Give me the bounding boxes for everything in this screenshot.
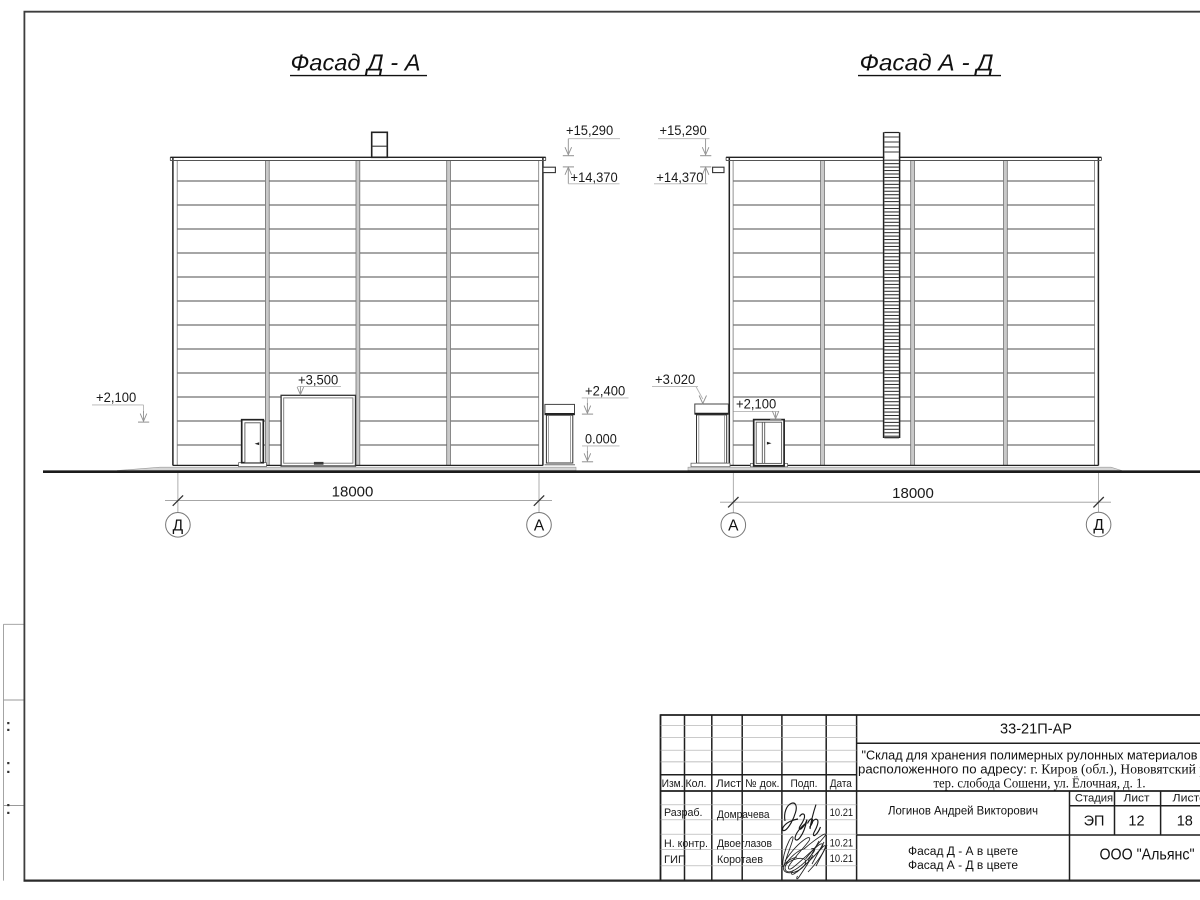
svg-text:Изм.: Изм. [662,778,684,790]
svg-text:+15,290: +15,290 [660,123,707,138]
svg-text:Лист: Лист [1124,793,1150,805]
svg-text:18000: 18000 [332,483,374,500]
svg-text:Д: Д [1093,517,1104,534]
svg-text:+14,370: +14,370 [656,170,703,185]
svg-text:+14,370: +14,370 [571,170,618,185]
svg-text:+3.020: +3.020 [655,372,695,387]
svg-text:ООО "Альянс": ООО "Альянс" [1100,847,1195,864]
svg-text:10.21: 10.21 [830,838,854,850]
svg-text:Д: Д [173,517,184,534]
svg-text:+3,500: +3,500 [298,372,338,387]
svg-text:12: 12 [1128,813,1144,829]
svg-text:Фасад Д - А в цвете: Фасад Д - А в цвете [908,846,1018,858]
svg-text:ГИП: ГИП [664,854,686,866]
svg-text:Фасад Д - А: Фасад Д - А [291,50,421,76]
svg-text:18000: 18000 [892,485,934,502]
svg-text:Логинов Андрей Викторович: Логинов Андрей Викторович [888,806,1038,818]
svg-text:Дата: Дата [830,778,853,790]
svg-text:Двоеглазов: Двоеглазов [717,838,772,850]
svg-text:33-21П-АР: 33-21П-АР [1000,721,1072,738]
svg-text:№ док.: № док. [745,778,779,790]
svg-text:Фасад А - Д в цвете: Фасад А - Д в цвете [908,860,1018,872]
svg-text:Домрачева: Домрачева [717,809,770,821]
svg-text:Фасад А - Д: Фасад А - Д [860,50,994,76]
svg-text:+2,100: +2,100 [736,397,776,412]
svg-text:Листов: Листов [1173,793,1200,805]
svg-text:+2,400: +2,400 [585,383,625,398]
svg-text:+2,100: +2,100 [96,390,136,405]
svg-text:0.000: 0.000 [585,431,617,446]
svg-text:Подп.: Подп. [791,778,818,790]
svg-text:ЭП: ЭП [1084,813,1105,829]
svg-text:10.21: 10.21 [830,853,854,865]
svg-text:Лист: Лист [716,778,741,790]
svg-text:18: 18 [1177,813,1193,829]
svg-text:А: А [534,517,545,534]
svg-text:"Склад для хранения полимерных: "Склад для хранения полимерных рулонных … [862,748,1198,763]
svg-text:10.21: 10.21 [830,807,854,819]
svg-text:Кол.: Кол. [686,778,707,790]
svg-text:Коротаев: Коротаев [717,854,763,866]
svg-text:тер. слобода Сошени, ул. Ёлочн: тер. слобода Сошени, ул. Ёлочная, д. 1. [934,774,1146,790]
svg-text:Разраб.: Разраб. [664,807,703,819]
svg-text:Н. контр.: Н. контр. [664,838,708,850]
svg-text:А: А [728,518,739,535]
svg-text:Стадия: Стадия [1075,793,1113,805]
svg-text:+15,290: +15,290 [566,123,613,138]
